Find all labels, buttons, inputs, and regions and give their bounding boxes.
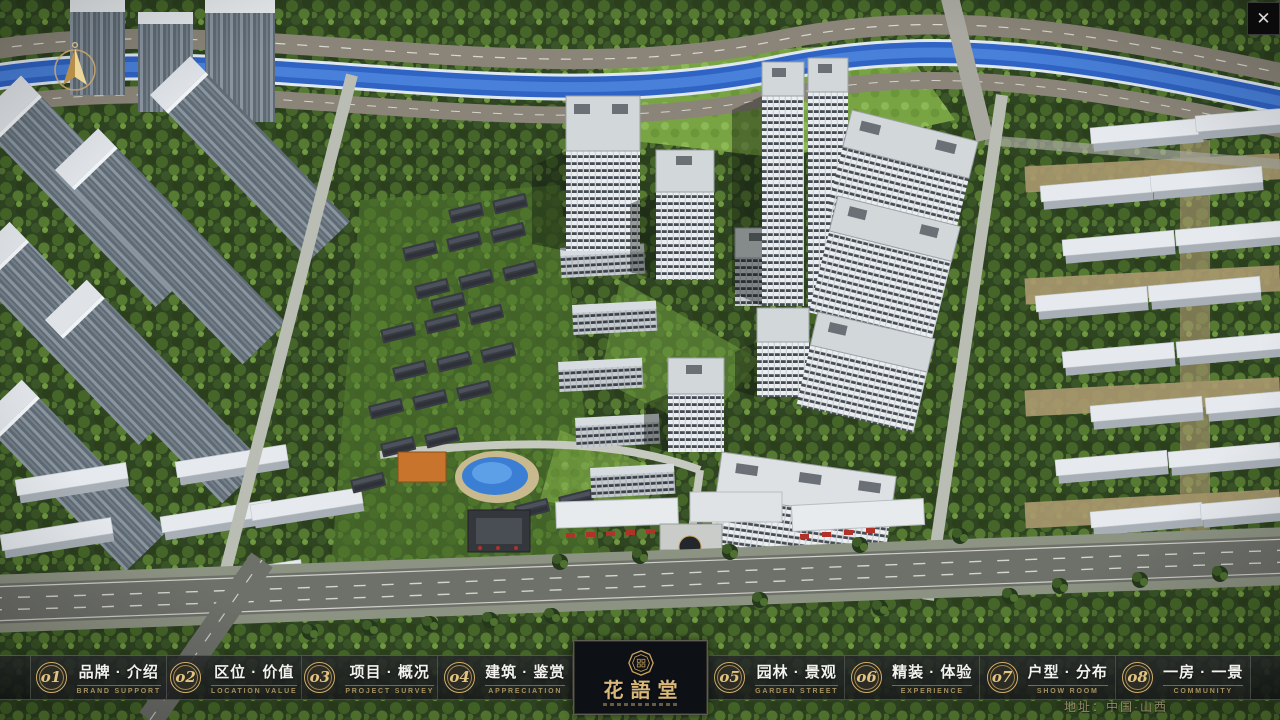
nav-label-en-7: SHOW ROOM — [1028, 685, 1108, 695]
nav-medallion-8: o8 — [1122, 662, 1153, 693]
nav-number-7: o7 — [992, 670, 1012, 685]
site-plan-render[interactable] — [0, 0, 1280, 720]
nav-medallion-6: o6 — [851, 662, 882, 693]
nav-label-cn-8: 一房 · 一景 — [1163, 661, 1243, 682]
nav-item-project-survey[interactable]: o3 项目 · 概况PROJECT SURVEY — [301, 656, 437, 699]
nav-number-1: o1 — [41, 670, 61, 685]
nav-item-garden-landscape[interactable]: o5 园林 · 景观GARDEN STREET — [708, 656, 844, 699]
site-plan-svg — [0, 0, 1280, 720]
nav-item-room-view[interactable]: o8 一房 · 一景COMMUNITY — [1115, 656, 1252, 699]
nav-number-3: o3 — [310, 670, 330, 685]
nav-label-en-1: BRAND SUPPORT — [77, 685, 161, 695]
nav-number-8: o8 — [1127, 670, 1147, 685]
logo-name: 花語堂 — [597, 680, 685, 700]
nav-item-location-value[interactable]: o2 区位 · 价值LOCATION VALUE — [166, 656, 302, 699]
nav-medallion-7: o7 — [987, 662, 1018, 693]
nav-medallion-2: o2 — [170, 662, 201, 693]
north-compass — [52, 38, 98, 94]
nav-label-cn-6: 精装 · 体验 — [892, 661, 972, 682]
project-logo[interactable]: 花語堂 — [573, 640, 708, 715]
nav-group-right: o5 园林 · 景观GARDEN STREET o6 精装 · 体验EXPERI… — [708, 656, 1251, 699]
logo-emblem-icon — [627, 649, 655, 677]
nav-medallion-5: o5 — [714, 662, 745, 693]
nav-item-unit-layout[interactable]: o7 户型 · 分布SHOW ROOM — [979, 656, 1115, 699]
nav-label-en-3: PROJECT SURVEY — [345, 685, 434, 695]
nav-label-en-6: EXPERIENCE — [892, 685, 972, 695]
nav-number-5: o5 — [719, 670, 739, 685]
close-icon: ✕ — [1256, 9, 1270, 29]
nav-label-cn-5: 园林 · 景观 — [757, 661, 837, 682]
nav-item-fine-decoration[interactable]: o6 精装 · 体验EXPERIENCE — [844, 656, 980, 699]
nav-label-en-2: LOCATION VALUE — [211, 685, 297, 695]
nav-item-brand-intro[interactable]: o1 品牌 · 介绍BRAND SUPPORT — [30, 656, 166, 699]
nav-label-cn-4: 建筑 · 鉴赏 — [485, 661, 565, 682]
close-button[interactable]: ✕ — [1247, 2, 1280, 35]
nav-number-2: o2 — [175, 670, 195, 685]
compass-top-ornament — [73, 43, 78, 48]
nav-label-cn-7: 户型 · 分布 — [1028, 661, 1108, 682]
nav-group-left: o1 品牌 · 介绍BRAND SUPPORT o2 区位 · 价值LOCATI… — [30, 656, 573, 699]
sales-presentation-window: ✕ o1 品牌 · 介绍BRAND SUPPORT o2 区位 · 价值LOCA… — [0, 0, 1280, 720]
nav-label-en-8: COMMUNITY — [1163, 685, 1243, 695]
nav-medallion-3: o3 — [304, 662, 335, 693]
nav-label-en-4: APPRECIATION — [485, 685, 565, 695]
nav-item-architecture[interactable]: o4 建筑 · 鉴赏APPRECIATION — [437, 656, 574, 699]
nav-number-6: o6 — [856, 670, 876, 685]
nav-label-en-5: GARDEN STREET — [755, 685, 838, 695]
nav-number-4: o4 — [449, 670, 469, 685]
nav-label-cn-2: 区位 · 价值 — [214, 661, 294, 682]
address-text: 地址：中国·山西 — [1064, 698, 1168, 715]
nav-medallion-1: o1 — [36, 662, 67, 693]
vignette-overlay — [0, 0, 1280, 720]
nav-label-cn-3: 项目 · 概况 — [350, 661, 430, 682]
logo-tagline-rule — [603, 703, 679, 706]
nav-label-cn-1: 品牌 · 介绍 — [79, 661, 159, 682]
nav-medallion-4: o4 — [444, 662, 475, 693]
